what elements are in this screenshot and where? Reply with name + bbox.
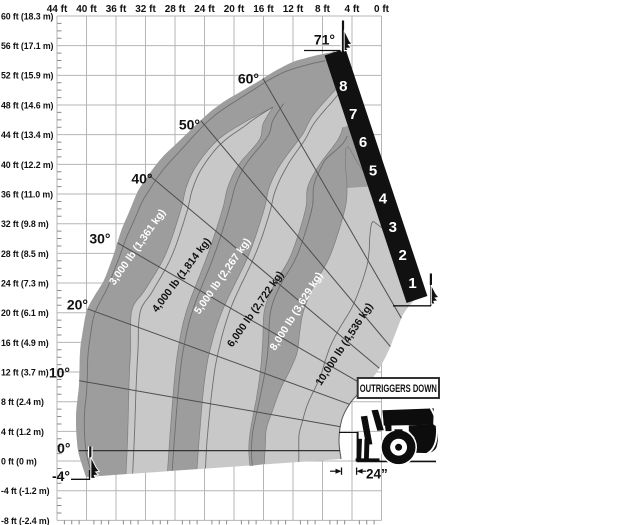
svg-text:5: 5 — [369, 162, 377, 179]
svg-text:56 ft (17.1 m): 56 ft (17.1 m) — [1, 41, 54, 51]
svg-text:-4°: -4° — [52, 468, 70, 484]
svg-text:60°: 60° — [238, 70, 259, 86]
svg-text:30°: 30° — [89, 231, 110, 247]
svg-text:0 ft (0 m): 0 ft (0 m) — [1, 456, 37, 466]
svg-text:40 ft: 40 ft — [76, 4, 97, 15]
svg-text:12 ft: 12 ft — [283, 4, 304, 15]
svg-text:20°: 20° — [67, 297, 88, 313]
svg-text:8 ft: 8 ft — [315, 4, 331, 15]
svg-text:32 ft (9.8 m): 32 ft (9.8 m) — [1, 219, 49, 229]
svg-text:16 ft (4.9 m): 16 ft (4.9 m) — [1, 338, 49, 348]
svg-text:OUTRIGGERS DOWN: OUTRIGGERS DOWN — [360, 383, 437, 396]
svg-text:40 ft (12.2 m): 40 ft (12.2 m) — [1, 160, 54, 170]
svg-text:4 ft (1.2 m): 4 ft (1.2 m) — [1, 427, 44, 437]
svg-text:-8 ft (-2.4 m): -8 ft (-2.4 m) — [1, 516, 50, 525]
svg-text:16 ft: 16 ft — [253, 4, 274, 15]
svg-text:7: 7 — [349, 106, 357, 123]
svg-text:12 ft (3.7 m): 12 ft (3.7 m) — [1, 367, 49, 377]
svg-text:24 ft: 24 ft — [194, 4, 215, 15]
svg-text:36 ft (11.0 m): 36 ft (11.0 m) — [1, 189, 53, 199]
svg-text:40°: 40° — [131, 170, 152, 186]
svg-text:28 ft: 28 ft — [165, 4, 186, 15]
svg-text:52 ft (15.9 m): 52 ft (15.9 m) — [1, 71, 54, 81]
svg-text:0°: 0° — [57, 440, 70, 456]
svg-text:60 ft (18.3 m): 60 ft (18.3 m) — [1, 11, 54, 21]
svg-text:2: 2 — [399, 247, 407, 264]
svg-text:4 ft: 4 ft — [345, 4, 361, 15]
svg-text:0 ft: 0 ft — [374, 4, 390, 15]
svg-text:20 ft (6.1 m): 20 ft (6.1 m) — [1, 308, 49, 318]
svg-text:10°: 10° — [49, 365, 70, 381]
svg-text:6: 6 — [359, 134, 367, 151]
svg-text:32 ft: 32 ft — [135, 4, 156, 15]
svg-text:4: 4 — [379, 191, 388, 208]
svg-text:50°: 50° — [179, 116, 200, 132]
svg-text:24”: 24” — [366, 467, 388, 482]
svg-text:71°: 71° — [314, 32, 335, 48]
svg-text:8 ft (2.4 m): 8 ft (2.4 m) — [1, 397, 44, 407]
svg-text:48 ft (14.6 m): 48 ft (14.6 m) — [1, 100, 54, 110]
svg-text:28 ft (8.5 m): 28 ft (8.5 m) — [1, 249, 49, 259]
svg-text:36 ft: 36 ft — [106, 4, 127, 15]
svg-text:8: 8 — [339, 78, 347, 95]
svg-text:3: 3 — [389, 219, 397, 236]
svg-text:20 ft: 20 ft — [224, 4, 245, 15]
svg-text:-4 ft (-1.2 m): -4 ft (-1.2 m) — [1, 486, 50, 496]
svg-text:44 ft (13.4 m): 44 ft (13.4 m) — [1, 130, 54, 140]
svg-text:24 ft (7.3 m): 24 ft (7.3 m) — [1, 278, 49, 288]
svg-text:1: 1 — [408, 275, 416, 292]
